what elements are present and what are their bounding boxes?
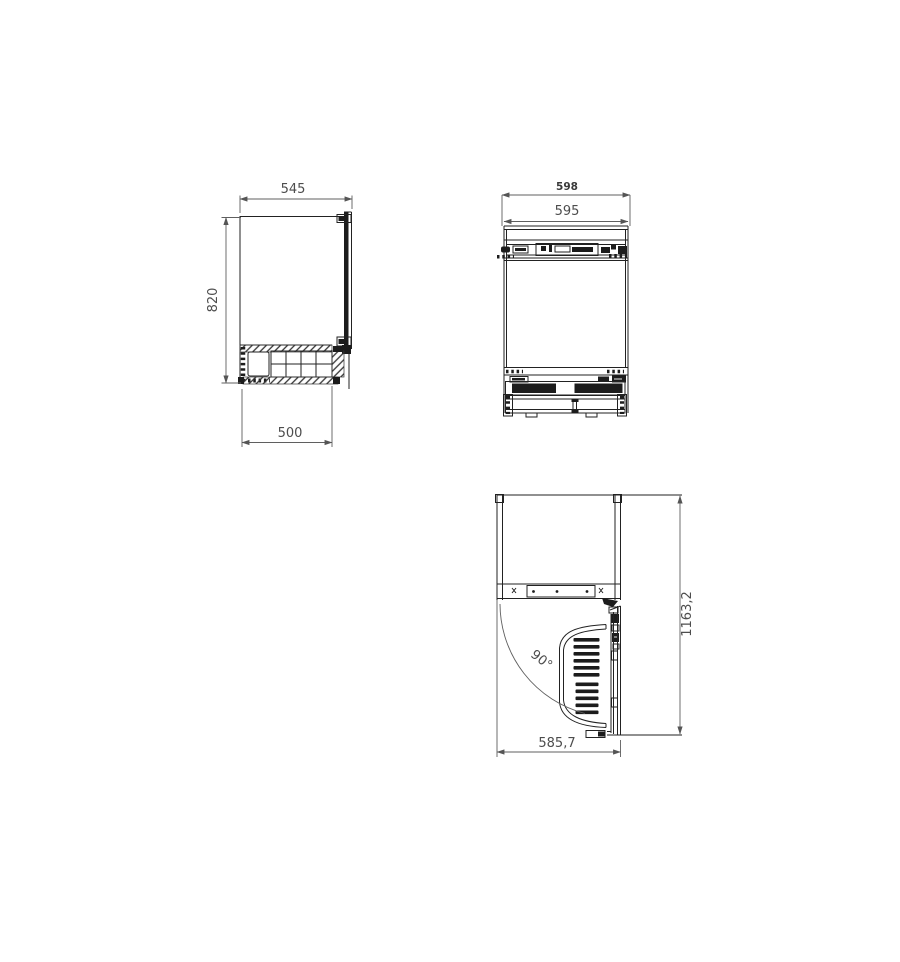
dim-base-depth-value: 500 bbox=[278, 426, 303, 441]
technical-drawing-canvas: 545 820 500 bbox=[0, 0, 900, 962]
dim-niche-width-value: 598 bbox=[556, 181, 578, 193]
cabinet-outline bbox=[240, 217, 343, 346]
vent-left bbox=[512, 384, 556, 394]
swing-arc: 90° bbox=[500, 604, 585, 714]
plinth bbox=[504, 395, 627, 418]
vent-right bbox=[575, 384, 623, 394]
door-front-panel bbox=[504, 261, 628, 368]
dim-depth-top: 545 bbox=[240, 182, 352, 213]
plan-view: 90° 1163,2 585,7 bbox=[496, 495, 696, 758]
door-angle-label: 90° bbox=[527, 647, 554, 673]
dim-appliance-width: 595 bbox=[504, 204, 628, 222]
dim-total-depth-value: 1163,2 bbox=[680, 591, 695, 637]
drawing-svg: 545 820 500 bbox=[0, 0, 900, 962]
door-shelves bbox=[560, 625, 607, 738]
dim-depth-top-value: 545 bbox=[281, 182, 306, 197]
dim-door-open-depth-value: 585,7 bbox=[538, 736, 575, 751]
dim-base-depth: 500 bbox=[242, 386, 332, 447]
machine-compartment bbox=[238, 345, 344, 384]
front-view: 598 595 bbox=[497, 181, 630, 417]
ventilation-grille bbox=[506, 382, 626, 396]
side-view: 545 820 500 bbox=[206, 182, 352, 447]
front-frame bbox=[497, 584, 621, 599]
shelf-bars bbox=[574, 638, 600, 714]
dim-height-value: 820 bbox=[206, 288, 221, 313]
dim-height: 820 bbox=[206, 218, 241, 384]
control-panel bbox=[497, 240, 628, 261]
lower-trim bbox=[504, 372, 628, 383]
dim-appliance-width-value: 595 bbox=[555, 204, 580, 219]
